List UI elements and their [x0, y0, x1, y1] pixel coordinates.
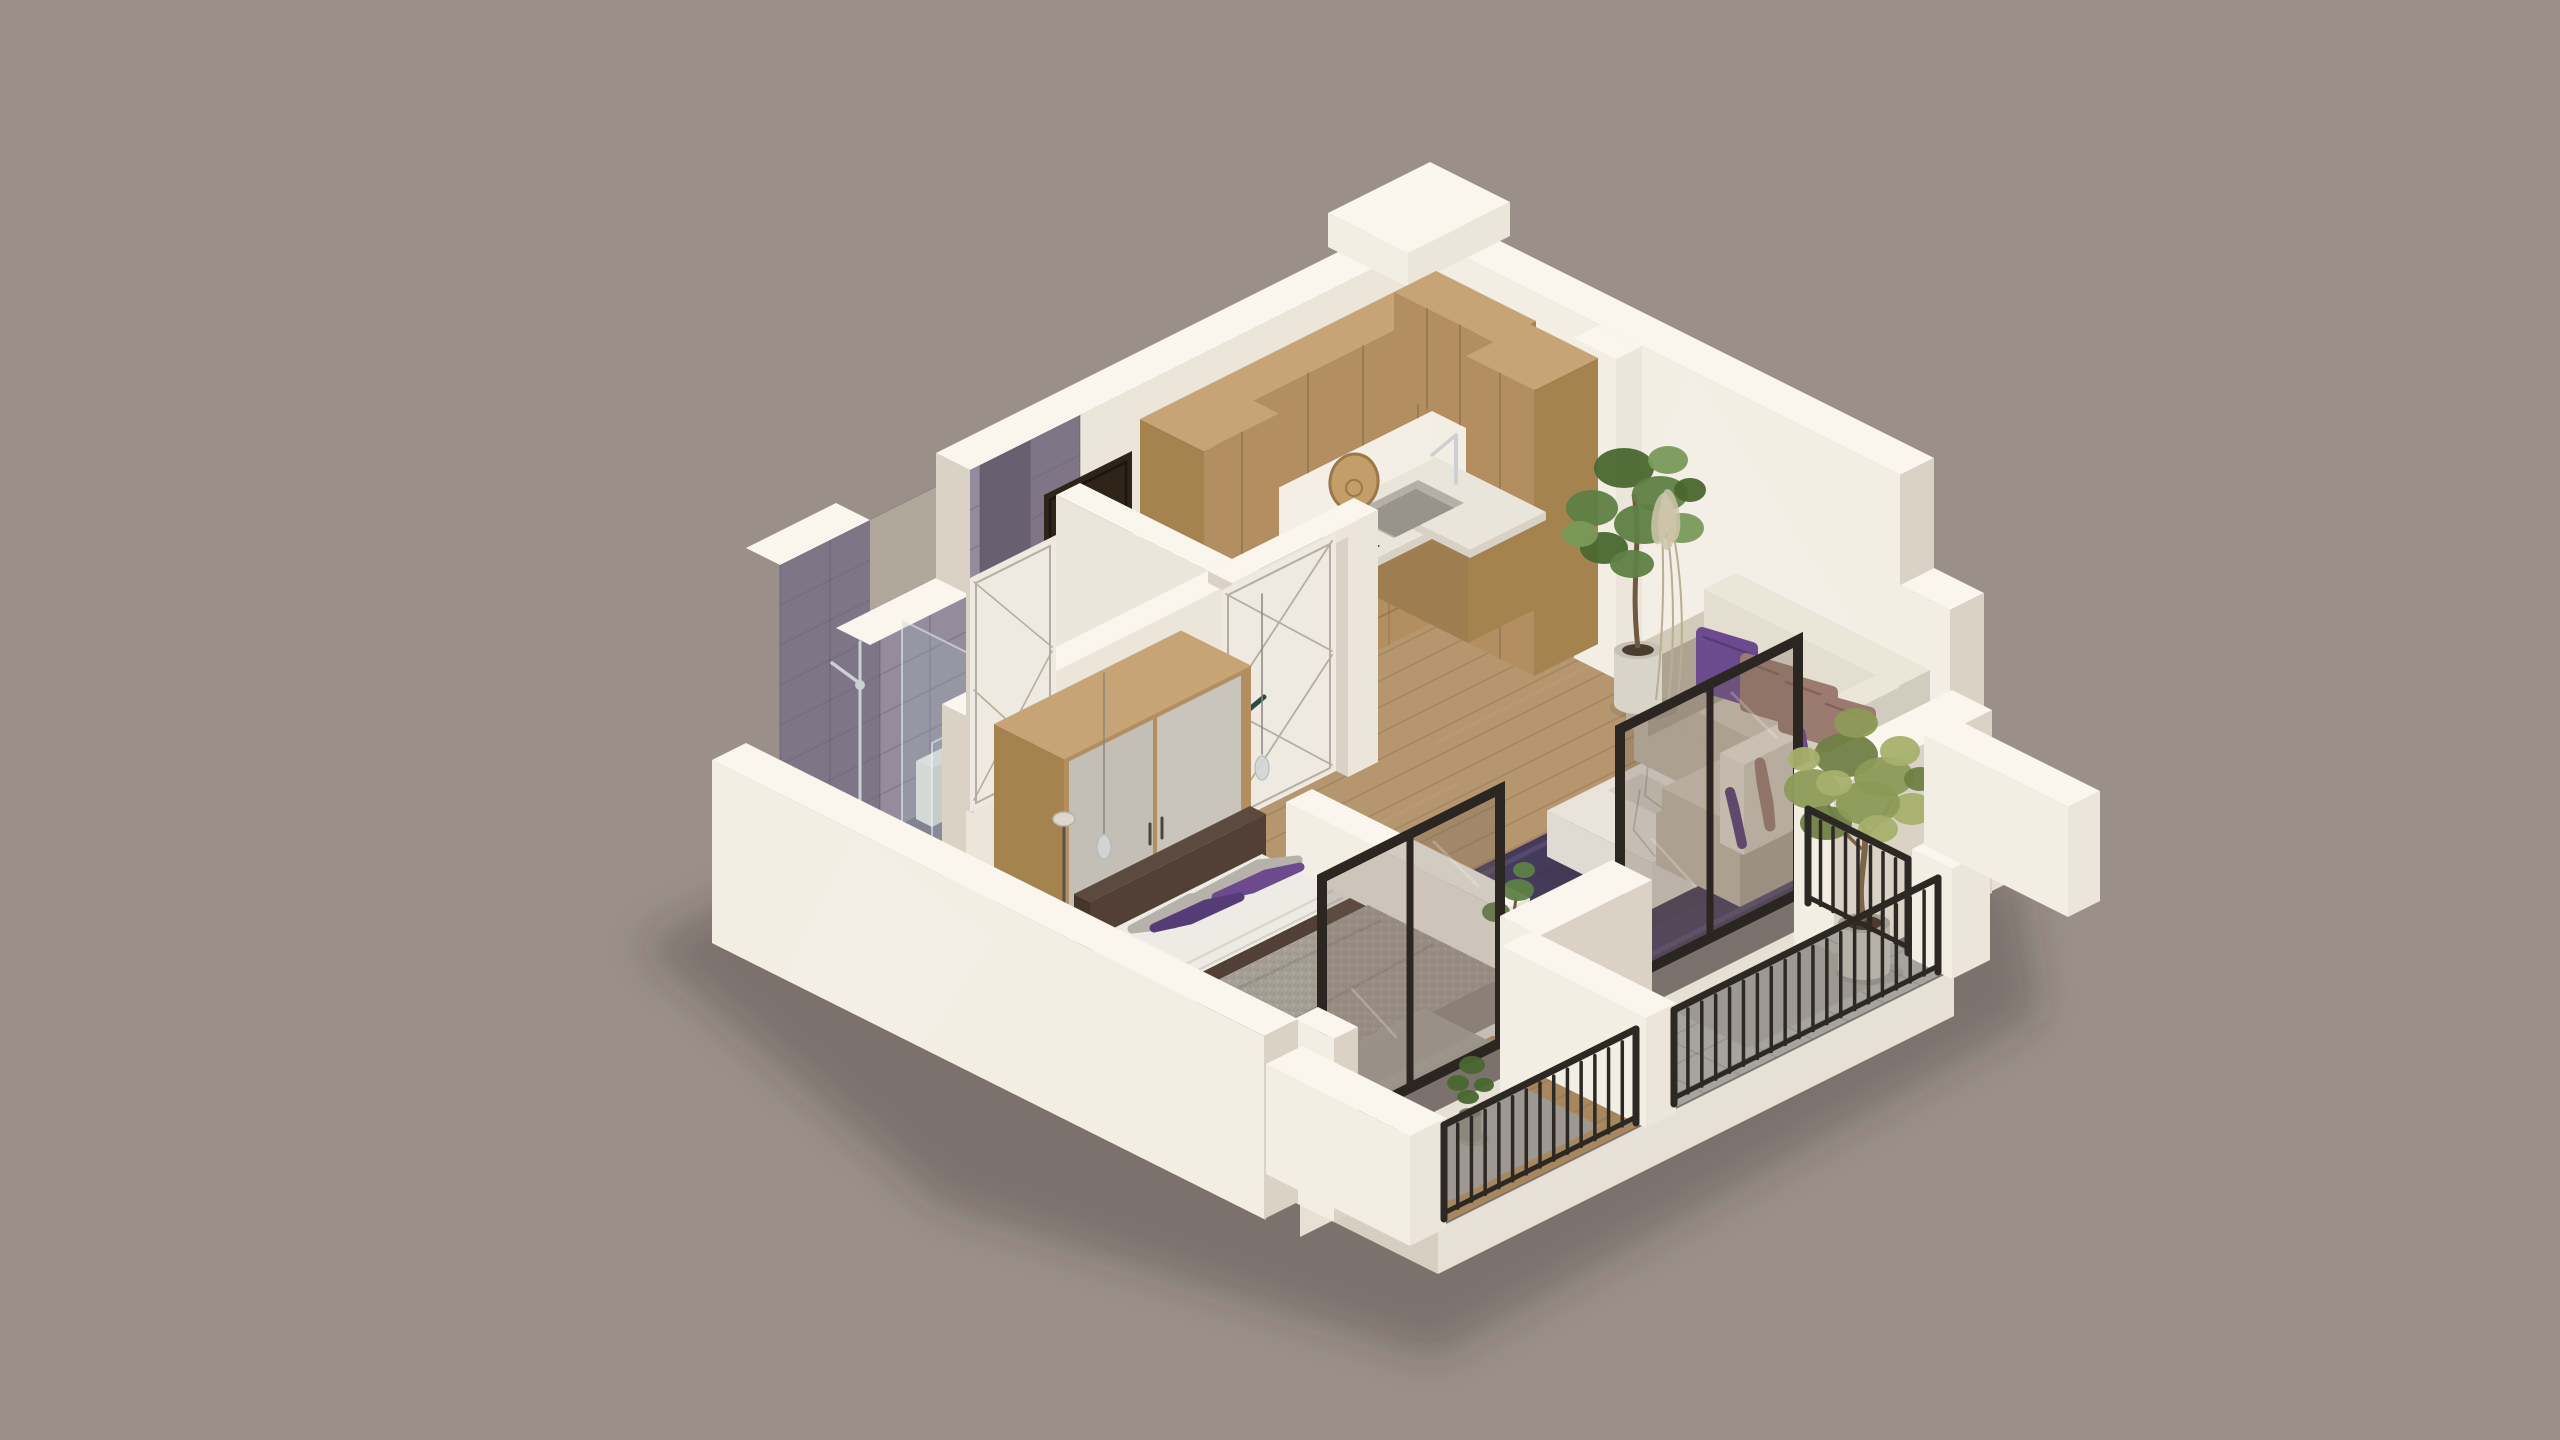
shower-head	[855, 680, 865, 690]
pendant-bulb	[1255, 756, 1269, 780]
window-jamb	[936, 453, 970, 595]
isometric-scene	[0, 0, 2560, 1440]
pendant-bulb	[1097, 835, 1111, 859]
lamp-shade	[1053, 812, 1075, 826]
apartment-floor-plan-render	[0, 0, 2560, 1440]
